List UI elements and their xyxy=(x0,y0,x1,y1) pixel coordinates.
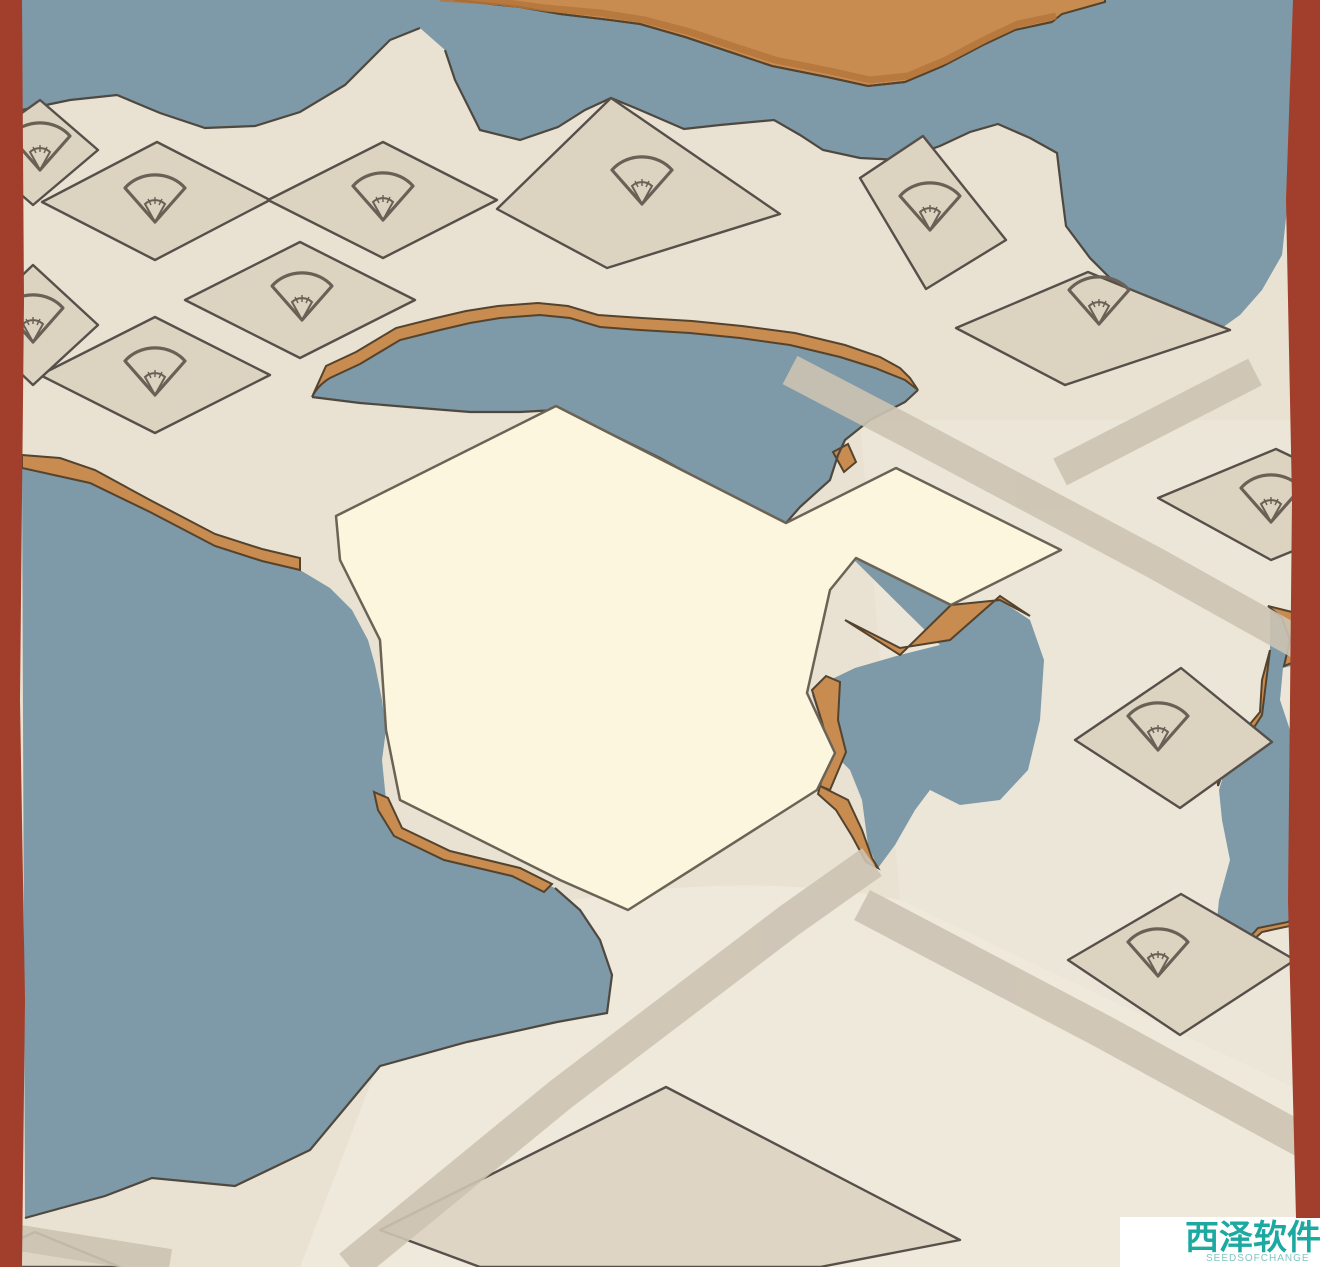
svg-text:西泽软件: 西泽软件 xyxy=(1185,1219,1320,1257)
svg-text:SEEDSOFCHANGE: SEEDSOFCHANGE xyxy=(1206,1253,1310,1264)
